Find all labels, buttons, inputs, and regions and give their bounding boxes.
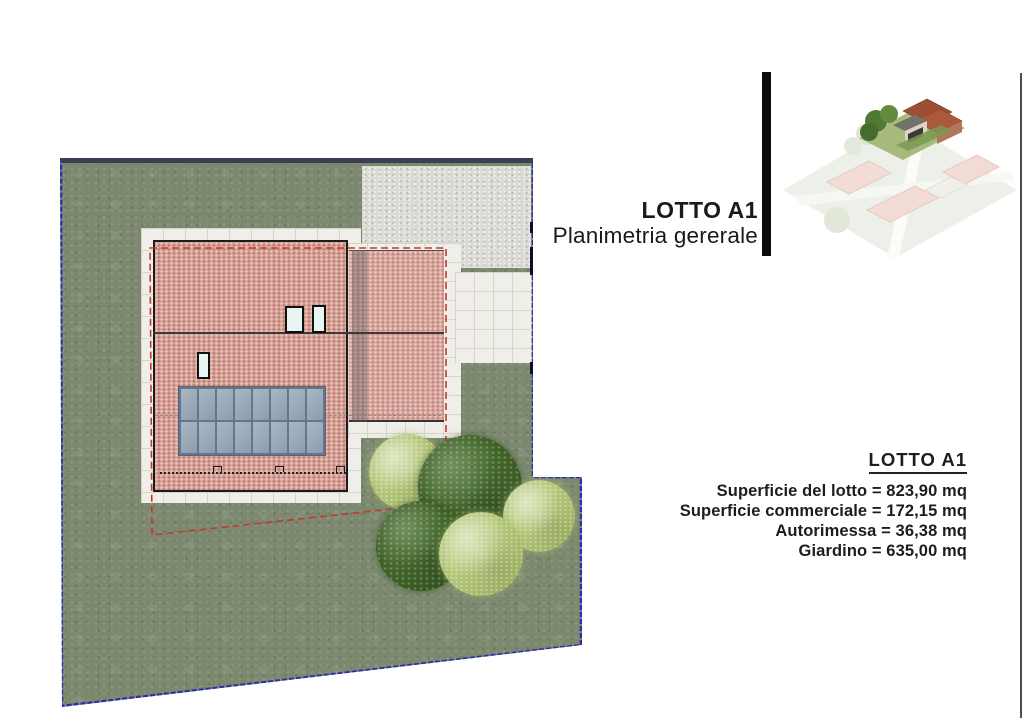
area-info-block: LOTTO A1 Superficie del lotto = 823,90 m… bbox=[617, 449, 967, 561]
title-block: LOTTO A1 Planimetria gererale bbox=[400, 197, 758, 249]
area-info-commercial-surface: Superficie commerciale = 172,15 mq bbox=[617, 501, 967, 521]
skylight bbox=[197, 352, 210, 379]
roof-junction-shadow bbox=[352, 250, 367, 422]
skylight bbox=[312, 305, 326, 333]
solar-panel-cell bbox=[253, 422, 269, 453]
solar-panel-cell bbox=[271, 422, 287, 453]
skylight bbox=[285, 306, 304, 333]
solar-panel-cell bbox=[271, 389, 287, 420]
title-drawing-name: Planimetria gererale bbox=[400, 223, 758, 249]
door-symbol bbox=[336, 466, 345, 472]
solar-panel-cell bbox=[217, 422, 233, 453]
solar-panel-cell bbox=[307, 422, 323, 453]
solar-panel-cell bbox=[199, 422, 215, 453]
patio-tiles bbox=[455, 272, 532, 363]
solar-panel-cell bbox=[289, 422, 305, 453]
solar-panel-cell bbox=[307, 389, 323, 420]
area-info-heading: LOTTO A1 bbox=[869, 449, 967, 474]
page: LOTTO A1 Planimetria gererale LOTTO A1 bbox=[0, 0, 1024, 718]
render-faded-garden bbox=[824, 207, 850, 233]
solar-panel-cell bbox=[181, 389, 197, 420]
context-3d-render bbox=[775, 72, 1022, 258]
area-info-lot-surface: Superficie del lotto = 823,90 mq bbox=[617, 481, 967, 501]
door-symbol bbox=[213, 466, 222, 472]
render-tree bbox=[860, 123, 878, 141]
solar-panel-cell bbox=[235, 389, 251, 420]
render-tree bbox=[880, 105, 898, 123]
area-info-garden: Giardino = 635,00 mq bbox=[617, 541, 967, 561]
solar-panel-cell bbox=[199, 389, 215, 420]
solar-panel-array bbox=[178, 386, 326, 456]
tree-light-3 bbox=[439, 512, 523, 596]
title-divider-bar bbox=[762, 72, 771, 256]
solar-panel-cell bbox=[181, 422, 197, 453]
door-symbol bbox=[275, 466, 284, 472]
solar-panel-cell bbox=[235, 422, 251, 453]
solar-panel-cell bbox=[289, 389, 305, 420]
solar-panel-cell bbox=[217, 389, 233, 420]
title-lot-name: LOTTO A1 bbox=[400, 197, 758, 223]
solar-panel-cell bbox=[253, 389, 269, 420]
facade-dotted-line bbox=[160, 472, 346, 474]
render-faded-tree bbox=[844, 137, 862, 155]
area-info-garage: Autorimessa = 36,38 mq bbox=[617, 521, 967, 541]
